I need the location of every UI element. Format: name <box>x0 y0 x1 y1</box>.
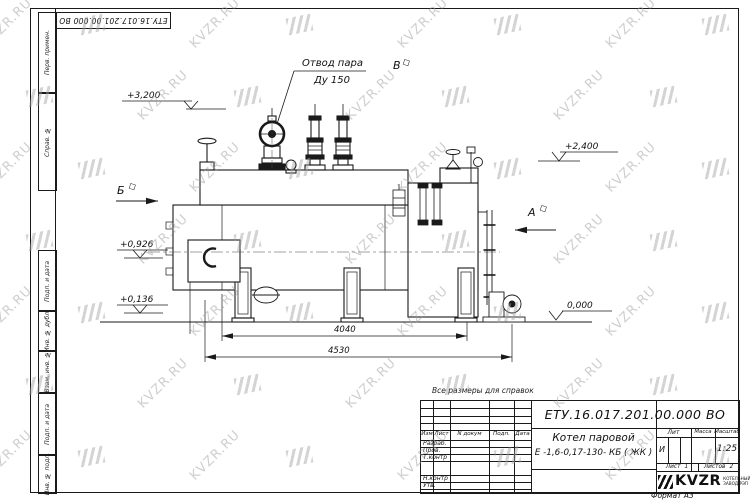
product-name-line1: Котел паровой <box>533 431 654 447</box>
col-list: Лист <box>433 430 450 440</box>
row-razrab: Разраб. <box>421 440 452 447</box>
sheet-cell: Лист1 <box>656 463 698 471</box>
format-label: Формат А3 <box>651 491 694 500</box>
row-tkontr: Т.контр <box>421 454 452 461</box>
scale-value: 1:25 <box>715 437 739 463</box>
col-izm: Изм <box>421 430 433 440</box>
safety-valve-2 <box>333 104 353 170</box>
drawing-sheet: Перв. примен. Справ. № Подп. и дата Инв.… <box>0 0 750 500</box>
elevation-2400: +2,400 <box>565 142 599 152</box>
steam-drum <box>200 170 408 205</box>
row-prov: Пров. <box>421 447 452 454</box>
company-logo: KVZR КОТЕЛЬНЫЙ ЗАВОД РЭП <box>658 472 737 491</box>
title-block: Изм Лист N докум Подп. Дата Разраб. Пров… <box>420 400 740 494</box>
elevation-0136: +0,136 <box>120 295 154 305</box>
dimension-4040: 4040 <box>334 325 356 335</box>
elevation-0000: 0,000 <box>567 301 593 311</box>
elevation-3200: +3,200 <box>127 91 161 101</box>
mass-label: Масса <box>691 429 715 437</box>
row-utv: Утв. <box>421 482 452 489</box>
pump-unit <box>483 292 525 322</box>
document-designation: ЕТУ.16.017.201.00.000 ВО <box>533 403 737 426</box>
lit-value: И <box>656 437 668 463</box>
row-nkontr: Н.контр <box>421 475 452 482</box>
dimension-4530: 4530 <box>328 346 350 356</box>
feed-pipe <box>478 210 496 305</box>
col-ndokum: N докум <box>450 430 489 440</box>
steam-outlet-label-line1: Отвод пара <box>302 58 363 69</box>
lit-label: Лит <box>656 429 691 437</box>
front-door-hinges <box>166 222 173 275</box>
scale-label: Масштаб <box>715 429 739 437</box>
kvzr-stripes-icon <box>658 475 673 489</box>
view-a-label: А <box>527 206 536 219</box>
col-podp: Подп. <box>489 430 514 440</box>
elevation-0926: +0,926 <box>120 240 154 250</box>
kvzr-logo-text: KVZR <box>675 474 721 489</box>
sheets-cell: Листов2 <box>698 463 739 471</box>
hand-valve <box>198 138 216 170</box>
sight-glass <box>252 287 280 303</box>
kvzr-logo-subtext: КОТЕЛЬНЫЙ ЗАВОД РЭП <box>723 477 750 487</box>
safety-valve-1 <box>305 104 325 170</box>
product-name-line2: Е -1,6-0,17-130- КБ ( ЖК ) <box>531 447 656 461</box>
view-v-label: В <box>393 59 401 72</box>
view-b-label: Б <box>117 184 125 197</box>
col-data: Дата <box>514 430 531 440</box>
reference-note: Все размеры для справок <box>432 386 534 395</box>
steam-outlet-label-line2: Ду 150 <box>313 75 350 86</box>
